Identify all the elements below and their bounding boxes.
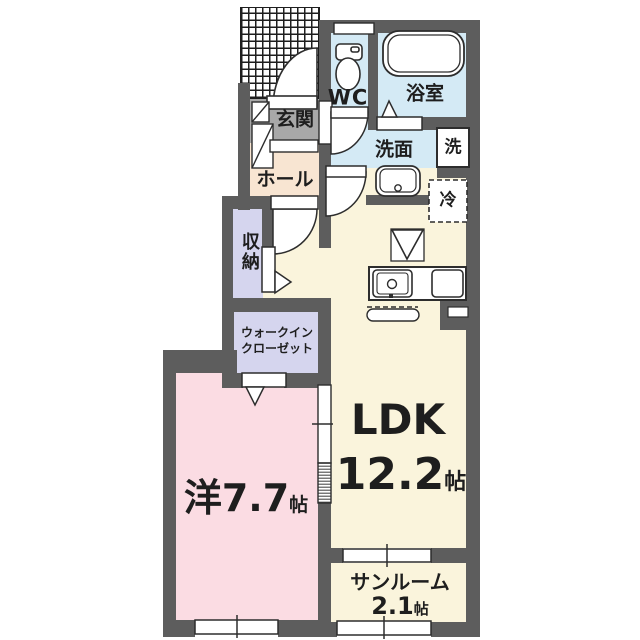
sliding-door xyxy=(312,385,333,503)
bathtub-icon xyxy=(383,31,464,76)
storage-label: 収納 xyxy=(239,232,259,272)
fixtures-layer xyxy=(0,0,640,640)
washroom-door xyxy=(326,166,366,216)
kitchen-counter xyxy=(369,267,466,300)
western-room-label: 洋7.7帖 xyxy=(184,478,308,520)
toilet-icon xyxy=(336,44,362,90)
entrance-step xyxy=(270,140,318,152)
sunroom-label: サンルーム xyxy=(350,571,449,593)
wc-door xyxy=(331,107,368,154)
sunroom-size-label: 2.1帖 xyxy=(371,593,429,619)
wc-window xyxy=(334,23,374,34)
western-size-value: 洋7.7 xyxy=(184,476,289,520)
wic-label: ウォークイン クローゼット xyxy=(241,325,313,356)
western-room-window xyxy=(195,615,278,638)
floor-plan: 玄関 ホール WC 浴室 洗面 洗 冷 収納 ウォークイン クローゼット LDK… xyxy=(0,0,640,640)
western-size-unit: 帖 xyxy=(289,494,308,516)
wic-door xyxy=(242,373,286,405)
washer-label: 洗 xyxy=(445,139,462,158)
kitchen-counter-edge xyxy=(367,307,468,321)
wash-basin-icon xyxy=(376,166,420,196)
wic-label-line2: クローゼット xyxy=(241,341,313,355)
sunroom-size-unit: 帖 xyxy=(414,600,429,618)
ldk-size-unit: 帖 xyxy=(444,470,466,495)
ldk-sunroom-window xyxy=(343,544,431,567)
fridge-label: 冷 xyxy=(440,192,457,211)
ldk-label: LDK xyxy=(351,397,445,443)
bath-label: 浴室 xyxy=(406,84,444,105)
genkan-label: 玄関 xyxy=(276,110,314,131)
hall-label: ホール xyxy=(256,170,313,191)
washroom-label: 洗面 xyxy=(375,140,413,161)
range-hood-symbol xyxy=(391,229,424,261)
sunroom-size-value: 2.1 xyxy=(371,592,414,620)
wic-label-line1: ウォークイン xyxy=(241,325,313,339)
wc-label: WC xyxy=(328,86,369,109)
ldk-size-value: 12.2 xyxy=(336,449,445,500)
hall-door xyxy=(271,196,318,254)
bath-door xyxy=(377,101,422,130)
ldk-size-label: 12.2帖 xyxy=(336,451,467,499)
entrance-door xyxy=(267,48,317,109)
